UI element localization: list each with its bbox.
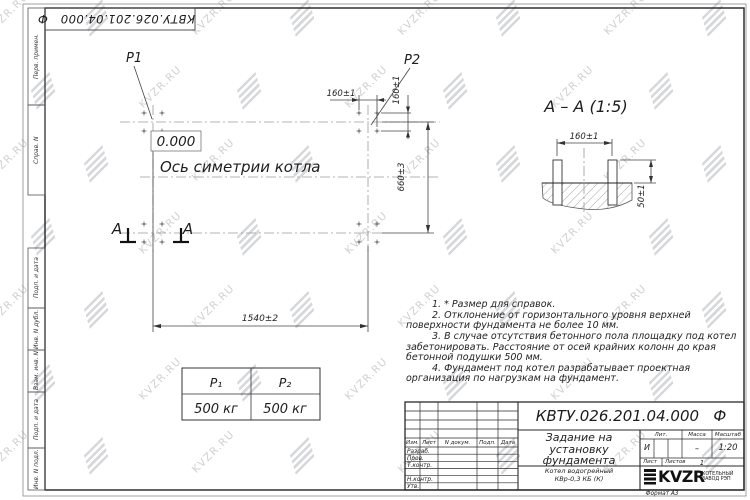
load-table-value-p2: 500 кг <box>263 402 307 417</box>
scale-label: Масштаб <box>712 432 744 438</box>
col-podp: Подп. <box>477 440 498 446</box>
lit-label: Лит. <box>640 432 682 438</box>
boiler-axis-label: Ось симетрии котла <box>160 158 320 176</box>
load-table-header-p2: P₂ <box>279 375 292 390</box>
axis-lines <box>120 105 440 252</box>
kvzr-logo-icon <box>644 469 656 486</box>
kvzr-logo-text: KVZR <box>658 467 702 486</box>
sheet-label: Лист <box>643 459 663 465</box>
margin-label-inv-podl: Инв. N подл. <box>28 448 45 490</box>
load-table: P₁ P₂ 500 кг 500 кг <box>182 368 320 420</box>
dim-bolt-spacing-h: 160±1 <box>327 89 356 99</box>
format-label: Формат А3 <box>602 491 722 497</box>
elevation-label: 0.000 <box>157 134 196 150</box>
dim-bolt-spacing-v: 160±1 <box>392 76 402 105</box>
col-list: Лист <box>420 440 438 446</box>
margin-label-sprav-n: Справ. N <box>28 105 45 195</box>
title-block-doc-number: КВТУ.026.201.04.000 Ф <box>520 403 742 430</box>
section-title: А – А (1:5) <box>543 97 627 116</box>
kvzr-logo-subtext: КОТЕЛЬНЫЙ ЗАВОД РЭП <box>702 472 742 484</box>
dimension-lines <box>134 66 434 332</box>
lit-value: И <box>640 443 654 452</box>
scale-value: 1:20 <box>712 443 744 453</box>
note-3: 3. В случае отсутствия бетонного пола пл… <box>406 332 738 364</box>
margin-label-podp-data-1: Подп. и дата <box>28 248 45 308</box>
drawing-sheet: KVZR.RUKVZR.RUKVZR.RUKVZR.RUKVZR.RUKVZR.… <box>0 0 750 500</box>
margin-label-perv-primen: Перв. примен. <box>28 8 45 105</box>
mass-label: Масса <box>682 432 712 438</box>
technical-notes: 1. * Размер для справок. 2. Отклонение о… <box>406 300 738 385</box>
margin-label-inv-dubl: Инв. N дубл. <box>28 308 45 350</box>
top-stamp-doc-number: КВТУ.026.201.04.000 Ф <box>45 8 195 30</box>
load-point-p1-label: P1 <box>126 51 142 66</box>
title-block-product: Котел водогрейный КВр-0,3 КБ (К) <box>519 468 639 483</box>
note-4: 4. Фундамент под котел разрабатывает про… <box>406 364 738 385</box>
section-dim-lines <box>557 139 656 183</box>
section-letter-a2: A <box>182 220 193 238</box>
dim-section-bolt-spacing: 160±1 <box>570 132 599 142</box>
load-table-header-p1: P₁ <box>210 375 223 390</box>
load-point-p2-label: P2 <box>404 53 420 68</box>
margin-label-podp-data-2: Подп. и дата <box>28 392 45 448</box>
row-t-kontr: Т.контр. <box>407 463 437 469</box>
row-utv: Утв. <box>407 484 437 490</box>
title-block-title: Задание на установку фундамента <box>519 432 639 467</box>
sheets-value: 1 <box>697 459 707 467</box>
col-data: Дата <box>498 440 518 446</box>
load-table-value-p1: 500 кг <box>194 402 238 417</box>
dim-foundation-width: 660±3 <box>397 163 407 192</box>
section-dim-arrows <box>557 141 653 183</box>
note-2: 2. Отклонение от горизонтального уровня … <box>406 311 738 332</box>
dim-foundation-length: 1540±2 <box>242 314 278 324</box>
section-view: А – А (1:5) 160±1 50±1 <box>542 97 656 214</box>
dim-section-bolt-height: 50±1 <box>637 184 647 207</box>
col-n-dokum: N докум. <box>438 440 477 446</box>
plan-view: 0.000 Ось симетрии котла P1 P2 A A 160±1… <box>111 51 440 332</box>
section-letter-a1: A <box>111 220 122 238</box>
row-razrab: Разраб. <box>407 449 437 455</box>
mass-value: – <box>682 444 712 453</box>
row-prov: Пров. <box>407 456 437 462</box>
col-izm: Изм. <box>405 440 420 446</box>
sheets-label: Листов <box>665 459 689 465</box>
margin-label-vzam-inv: Взам. инв. N <box>28 350 45 392</box>
section-cut-marks <box>120 228 189 242</box>
row-n-kontr: Н.контр. <box>407 477 437 483</box>
